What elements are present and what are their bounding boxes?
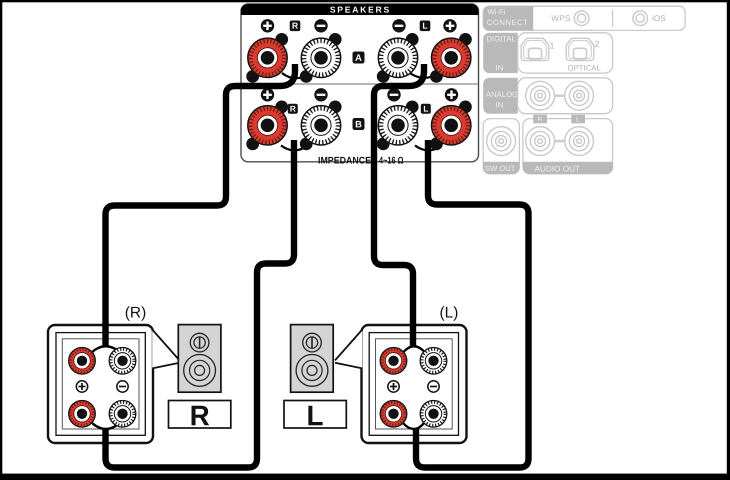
svg-text:AUDIO OUT: AUDIO OUT — [535, 164, 581, 173]
svg-text:IMPEDANCE: IMPEDANCE — [318, 156, 372, 167]
svg-text:L: L — [576, 117, 580, 124]
svg-text:SW OUT: SW OUT — [485, 164, 516, 173]
svg-text:iOS: iOS — [652, 14, 666, 23]
svg-text:R: R — [538, 117, 543, 124]
svg-text:(R): (R) — [125, 305, 147, 322]
svg-text:CONNECT: CONNECT — [487, 18, 528, 27]
svg-text:DIGITAL: DIGITAL — [487, 34, 517, 43]
svg-text:2: 2 — [595, 39, 600, 49]
svg-text:(L): (L) — [440, 305, 459, 322]
svg-text:WPS: WPS — [551, 14, 571, 23]
svg-text:1: 1 — [550, 41, 555, 51]
svg-text:OPTICAL: OPTICAL — [568, 63, 602, 72]
svg-text:4~16 Ω: 4~16 Ω — [379, 156, 404, 167]
svg-text:IN: IN — [496, 100, 504, 109]
svg-text:Wi-Fi: Wi-Fi — [488, 8, 506, 17]
svg-text:IN: IN — [496, 63, 504, 72]
svg-text:ANALOG: ANALOG — [486, 90, 518, 99]
